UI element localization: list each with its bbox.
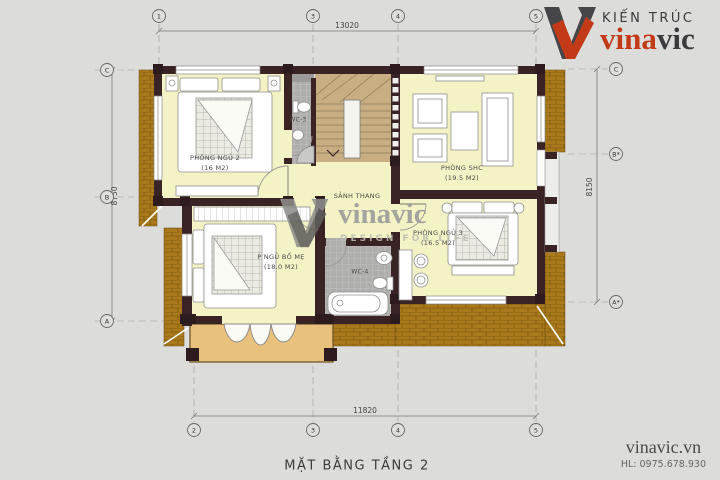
window-shc-north bbox=[424, 66, 518, 74]
vinavic-logo-icon bbox=[544, 7, 600, 59]
footer-website: vinavic.vn bbox=[621, 437, 706, 458]
stair-void bbox=[344, 100, 360, 158]
watermark: vinavic DESIGN FOR LIFE bbox=[280, 196, 450, 256]
grid-label: B bbox=[105, 194, 109, 202]
window-bedroom3-south bbox=[426, 296, 506, 304]
room-label-wc4: WC-4 bbox=[351, 269, 368, 276]
dim-bottom: 11820 bbox=[353, 406, 377, 415]
grid-label: 5 bbox=[534, 13, 538, 21]
company-logo: KIẾN TRÚC vinavic bbox=[544, 5, 716, 63]
grid-label: 4 bbox=[396, 427, 400, 435]
staircase bbox=[315, 72, 391, 162]
east-bay bbox=[545, 152, 559, 252]
floor-plan-sheet: 13020 11820 8750 8150 bbox=[0, 0, 720, 480]
dim-top: 13020 bbox=[335, 21, 359, 30]
room-label-bedroom2: PHÒNG NGỦ 2 bbox=[190, 154, 240, 162]
drawing-title: MẶT BẰNG TẦNG 2 bbox=[284, 459, 429, 474]
watermark-brand: vinavic bbox=[338, 198, 427, 231]
watermark-logo-icon bbox=[280, 198, 332, 248]
grid-label: B* bbox=[612, 151, 620, 159]
roof-bottom-center bbox=[333, 324, 395, 346]
window-bedroom2-west bbox=[154, 96, 162, 180]
roof-left-lower bbox=[164, 228, 184, 346]
watermark-tagline: DESIGN FOR LIFE bbox=[340, 234, 472, 244]
grid-label: 1 bbox=[157, 13, 161, 21]
window-bedroom2-north bbox=[176, 66, 260, 74]
logo-brand-prefix: vina bbox=[600, 21, 657, 56]
grid-label: A* bbox=[612, 299, 620, 307]
grid-label: 3 bbox=[311, 13, 315, 21]
grid-label: 2 bbox=[192, 427, 196, 435]
dim-right: 8150 bbox=[585, 177, 594, 196]
logo-brand-suffix: vic bbox=[657, 21, 695, 56]
footer-hotline: HL: 0975.678.930 bbox=[621, 459, 706, 470]
room-area-bedroom2: (16 M2) bbox=[201, 164, 228, 172]
grid-label: 5 bbox=[534, 427, 538, 435]
window-shc-east bbox=[537, 96, 545, 142]
roof-bottom-right bbox=[395, 304, 545, 346]
grid-label: C bbox=[105, 67, 110, 75]
room-area-parents: (18.0 M2) bbox=[264, 263, 298, 271]
grid-label: 3 bbox=[311, 427, 315, 435]
grid-label: 4 bbox=[396, 13, 400, 21]
window-parents-west bbox=[182, 234, 192, 296]
grid-label: A bbox=[105, 318, 110, 326]
grid-label: C bbox=[614, 66, 619, 74]
roof-right-upper bbox=[545, 70, 565, 152]
room-label-wc3: WC-3 bbox=[289, 117, 306, 124]
stair-window-strip bbox=[393, 78, 399, 156]
room-label-shc: PHÒNG SHC bbox=[441, 164, 483, 172]
footer-contact: vinavic.vn HL: 0975.678.930 bbox=[621, 437, 706, 470]
logo-brand: vinavic bbox=[600, 23, 695, 54]
room-area-shc: (19.5 M2) bbox=[445, 174, 479, 182]
